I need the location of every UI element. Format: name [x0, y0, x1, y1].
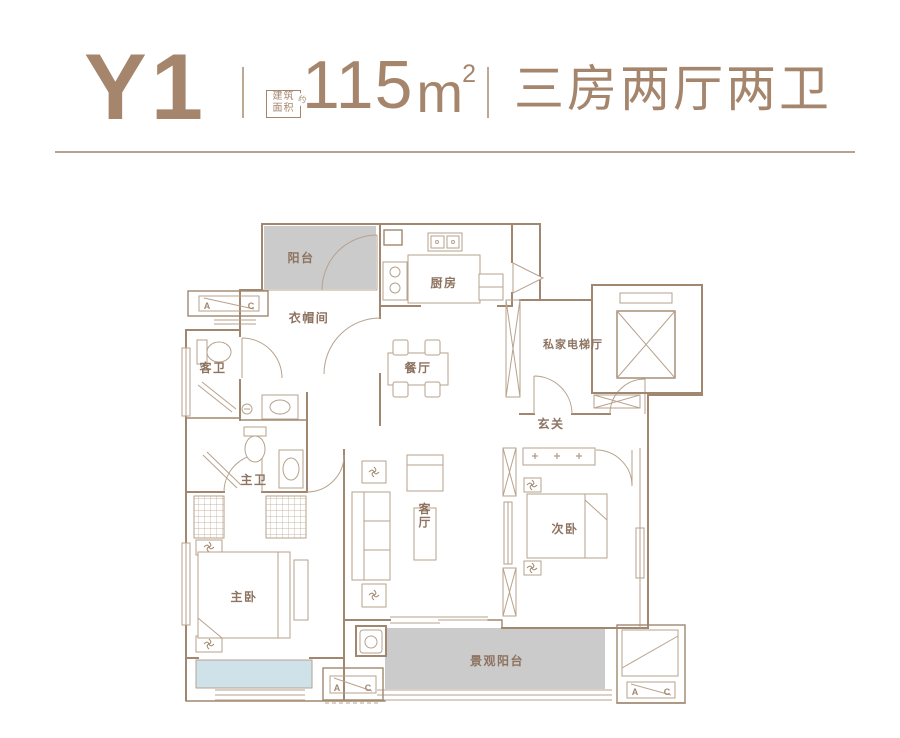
- floor-plan: A C A C A C: [0, 0, 900, 738]
- kitchen-service-door: [513, 263, 543, 293]
- ac-unit-topleft: A C: [188, 291, 268, 324]
- label-cloakroom: 衣帽间: [289, 310, 330, 325]
- floorplan-page: Y1 建筑 面积 约 115 m 2 三房两厅两卫: [0, 0, 900, 738]
- balcony-fill: [264, 226, 376, 289]
- ac-letter-a: A: [632, 687, 639, 697]
- label-foyer: 玄关: [537, 416, 564, 431]
- guest-bath-fixtures: [197, 340, 298, 419]
- label-living-room: 客厅: [417, 501, 431, 529]
- washing-machine: [356, 626, 386, 656]
- bay-window-fill: [196, 660, 312, 688]
- label-dining: 餐厅: [404, 360, 431, 375]
- ac-letter-a: A: [204, 301, 211, 311]
- label-view-balcony: 景观阳台: [470, 653, 524, 668]
- wall-columns: [503, 300, 520, 616]
- label-balcony: 阳台: [287, 250, 314, 265]
- label-kitchen: 厨房: [430, 275, 457, 290]
- ac-letter-c: C: [248, 301, 255, 311]
- ac-unit-bottomright: A C: [617, 625, 685, 703]
- living-room-furniture: [352, 455, 443, 607]
- label-master-bath: 主卫: [240, 472, 267, 487]
- ac-letter-c: C: [365, 683, 372, 693]
- label-private-elevator-hall: 私家电梯厅: [543, 337, 603, 351]
- label-guest-bath: 客卫: [198, 360, 226, 375]
- kitchen-fixtures: [383, 230, 503, 303]
- ac-letter-a: A: [334, 683, 341, 693]
- master-bedroom-furniture: [194, 496, 308, 652]
- ac-unit-bottomleft: A C: [323, 668, 383, 703]
- elevator-shaft: [592, 285, 702, 408]
- ac-letter-c: C: [664, 687, 671, 697]
- label-master-bedroom: 主卧: [230, 589, 257, 604]
- second-bedroom-furniture: [523, 448, 607, 575]
- label-second-bedroom: 次卧: [551, 521, 578, 536]
